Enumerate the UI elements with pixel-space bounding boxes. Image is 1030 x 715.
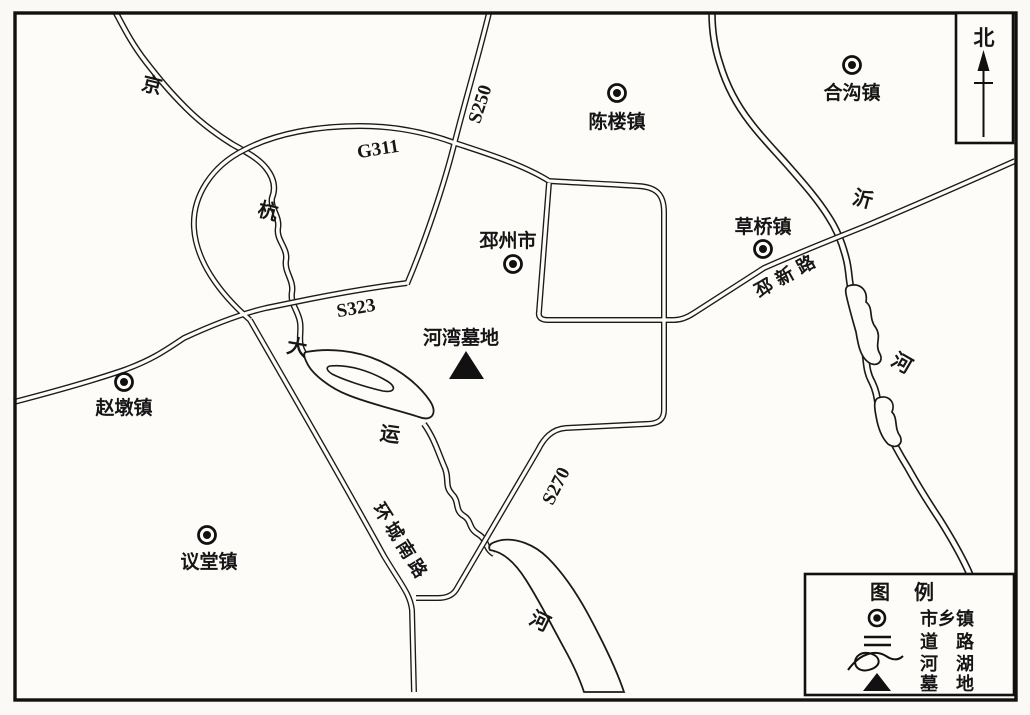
town-label: 议堂镇 bbox=[180, 550, 237, 573]
river-lake-symbol-icon bbox=[855, 653, 879, 671]
north-indicator: 北 bbox=[956, 13, 1013, 143]
town-marker-dot bbox=[120, 378, 128, 386]
canal-char-da: 大 bbox=[285, 334, 309, 360]
legend: 图 例 市乡镇 道 路 河 湖 墓 地 bbox=[805, 574, 1014, 695]
town-marker-dot bbox=[759, 245, 767, 253]
town-label: 草桥镇 bbox=[734, 215, 791, 238]
north-label: 北 bbox=[974, 26, 995, 50]
legend-label: 道 路 bbox=[920, 631, 975, 652]
town-label: 赵墩镇 bbox=[94, 396, 152, 419]
town-label: 合沟镇 bbox=[823, 81, 880, 104]
legend-title: 图 例 bbox=[870, 580, 936, 604]
site-label: 河湾墓地 bbox=[423, 326, 499, 349]
town-marker-dot bbox=[848, 61, 856, 69]
legend-label: 市乡镇 bbox=[920, 608, 974, 629]
map-canvas: 北 G311 S250 S323 S270 邳新路 环城南路 京 杭 大 运 河… bbox=[0, 0, 1030, 715]
canal-char-yun: 运 bbox=[378, 422, 401, 448]
town-marker-dot bbox=[613, 89, 621, 97]
town-marker-dot bbox=[509, 260, 517, 268]
legend-label: 墓 地 bbox=[919, 673, 974, 694]
town-label: 陈楼镇 bbox=[588, 110, 645, 133]
archaeological-site-map: 北 G311 S250 S323 S270 邳新路 环城南路 京 杭 大 运 河… bbox=[0, 0, 1030, 715]
town-marker-dot bbox=[873, 614, 881, 622]
town-label: 邳州市 bbox=[478, 229, 536, 252]
legend-label: 河 湖 bbox=[920, 654, 974, 674]
town-marker-dot bbox=[203, 531, 211, 539]
